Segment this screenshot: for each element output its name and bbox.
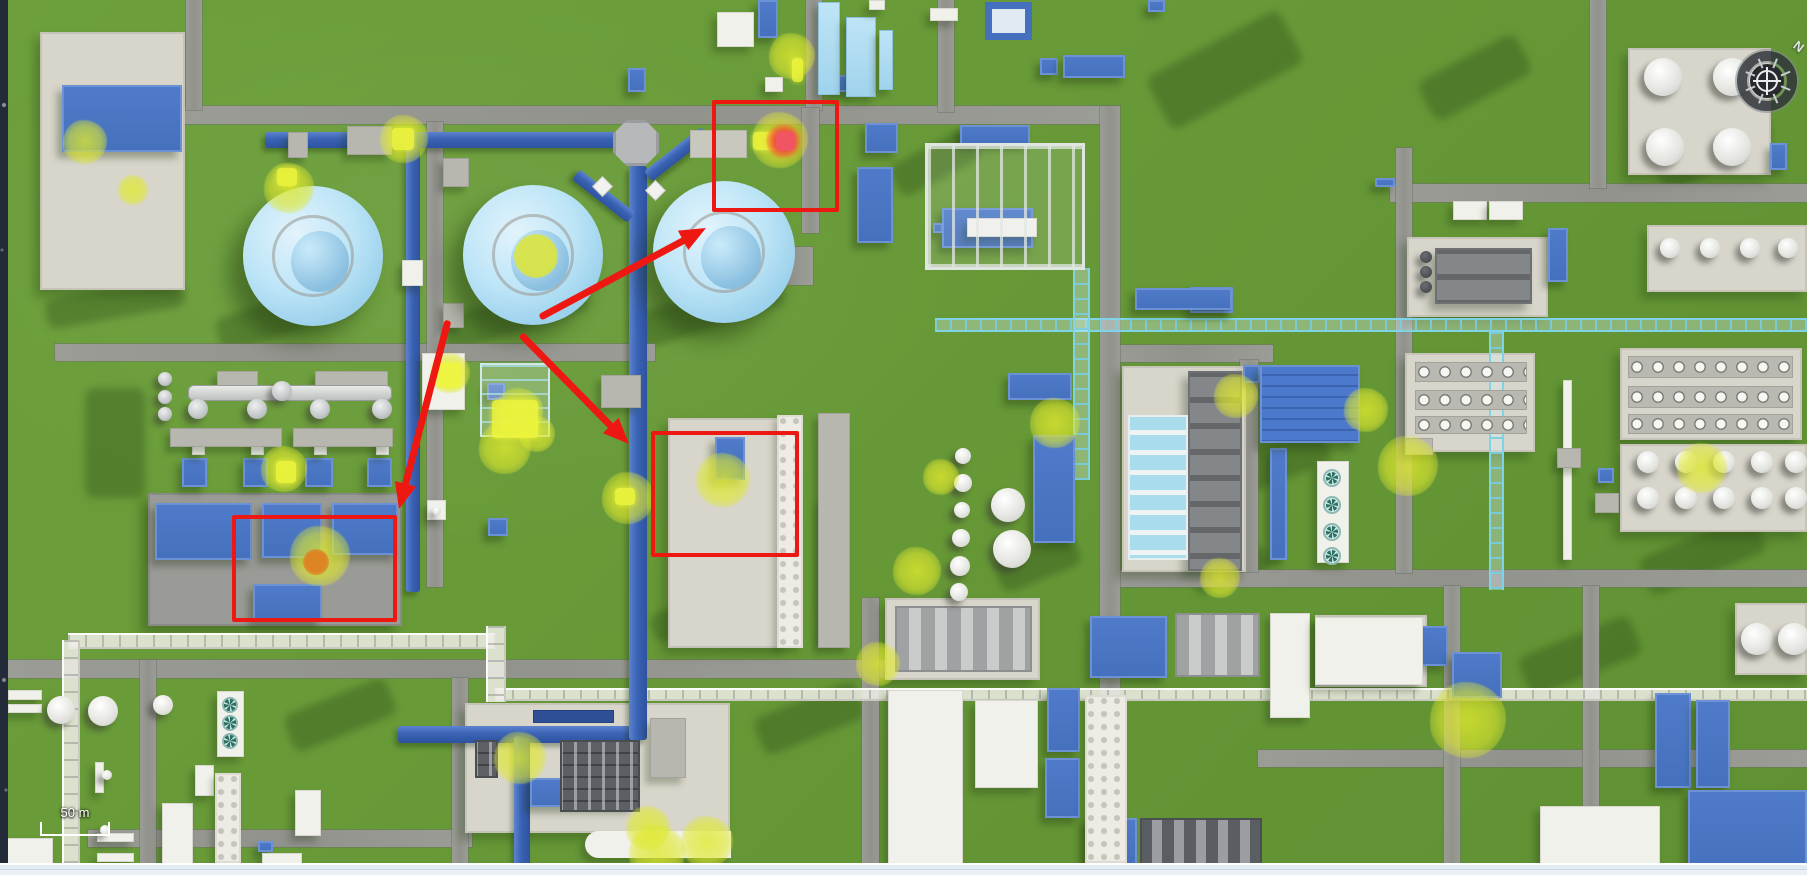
building-bb <box>488 518 508 536</box>
storage-tank <box>1751 451 1773 473</box>
process-pipe <box>406 140 420 592</box>
building-bb <box>1770 143 1787 170</box>
building-bg <box>1557 448 1581 468</box>
storage-tank <box>153 695 173 715</box>
building-bw <box>765 77 783 92</box>
sensor-marker-core <box>277 168 297 186</box>
building-bb <box>1375 178 1395 187</box>
building-exch <box>1628 386 1793 408</box>
bottom-window-edge <box>0 863 1807 875</box>
building-exch <box>1628 414 1793 434</box>
storage-tank <box>102 770 112 780</box>
plant-map-viewport[interactable]: N 50 m <box>0 0 1807 875</box>
building-bg <box>217 371 258 386</box>
compressor-unit <box>158 372 172 386</box>
building-bg <box>293 428 393 447</box>
storage-tank <box>1637 451 1659 473</box>
utility-pipe-bridge <box>1073 268 1090 480</box>
building-bw <box>195 765 214 796</box>
storage-tank <box>47 696 75 724</box>
storage-tank <box>1644 58 1682 96</box>
building-bb <box>758 0 778 38</box>
sensor-heat-marker[interactable] <box>514 234 558 278</box>
storage-tank <box>433 507 441 515</box>
storage-tank <box>1713 128 1751 166</box>
road <box>0 660 912 678</box>
building-bb <box>628 68 646 92</box>
building-exch <box>1415 390 1527 410</box>
compass-crosshair-icon <box>1756 70 1778 92</box>
compressor-unit <box>188 399 208 419</box>
storage-tank <box>952 529 970 547</box>
building-bb <box>1270 448 1287 560</box>
road <box>186 0 202 110</box>
sensor-heat-marker[interactable] <box>626 806 670 850</box>
building-bb <box>182 458 207 487</box>
building-containers <box>895 606 1032 672</box>
building-bb <box>1090 616 1167 678</box>
cooling-fan <box>1323 547 1341 565</box>
storage-tank <box>1785 451 1807 473</box>
process-pipe <box>265 132 635 148</box>
sensor-heat-marker[interactable] <box>1200 558 1240 598</box>
building-lb <box>846 17 876 97</box>
building-lb <box>818 2 840 95</box>
sensor-heat-marker[interactable] <box>1030 398 1080 448</box>
sensor-heat-marker[interactable] <box>118 175 148 205</box>
ground-shadow <box>85 388 145 498</box>
building-bw <box>8 704 42 713</box>
building-bw <box>1315 617 1423 685</box>
compressor-unit <box>310 399 330 419</box>
building-bg <box>443 158 469 187</box>
pipe-rack <box>68 633 495 649</box>
pipe-junction-platform <box>613 120 659 166</box>
building-bg <box>315 371 388 386</box>
storage-tank <box>1785 487 1807 509</box>
building-bb <box>865 123 898 153</box>
compressor-unit <box>158 407 172 421</box>
building-bbd <box>533 710 614 723</box>
building-bw <box>8 690 42 700</box>
building-bw <box>1489 201 1523 220</box>
sensor-marker-core <box>276 461 296 483</box>
sensor-heat-marker[interactable] <box>1344 388 1388 432</box>
cooling-fan <box>222 715 238 731</box>
concrete-pad <box>40 32 185 290</box>
building-machinery <box>560 740 640 812</box>
building-bw <box>1563 380 1572 560</box>
map-canvas[interactable] <box>0 0 1807 875</box>
pipe-rack <box>62 640 80 875</box>
storage-tank <box>1740 238 1760 258</box>
ground-shadow <box>1145 8 1306 131</box>
building-bw <box>1270 613 1310 718</box>
building-exch <box>1628 356 1793 378</box>
road <box>55 344 655 361</box>
compressor-unit <box>372 399 392 419</box>
road <box>1590 0 1606 188</box>
building-bg <box>288 132 308 158</box>
building-bw <box>402 260 423 286</box>
pipe-rack <box>486 626 506 702</box>
sensor-heat-marker[interactable] <box>681 816 733 868</box>
building-bb <box>1135 288 1232 310</box>
building-bb <box>367 458 392 487</box>
storage-tank <box>1637 487 1659 509</box>
storage-tank <box>1660 238 1680 258</box>
compressor-unit <box>272 381 292 401</box>
concrete-pad <box>1647 225 1807 292</box>
building-bb <box>1008 373 1072 400</box>
map-scale-bar: 50 m <box>40 822 110 836</box>
utility-pipe-bridge <box>935 318 1807 332</box>
building-bg-dark <box>1435 248 1532 304</box>
building-bb <box>1047 688 1080 752</box>
building-bb <box>1655 693 1691 788</box>
storage-tank <box>1700 238 1720 258</box>
building-bb <box>258 841 273 852</box>
sensor-marker-core <box>615 488 635 505</box>
building-bw <box>295 790 321 836</box>
building-bw <box>930 8 958 21</box>
building-skylight <box>1128 415 1188 560</box>
building-exch <box>1415 416 1527 434</box>
building-bb <box>1148 0 1165 12</box>
building-bb <box>1040 58 1058 75</box>
cooling-fan <box>1323 523 1341 541</box>
storage-tank <box>993 530 1031 568</box>
building-bw <box>97 853 134 862</box>
building-bb <box>1045 758 1080 818</box>
building-bb <box>1598 468 1614 483</box>
building-bg <box>170 428 282 447</box>
building-exch <box>1415 362 1527 382</box>
storage-sphere <box>243 186 383 326</box>
compass-widget[interactable]: N <box>1737 51 1797 111</box>
sensor-heat-marker[interactable] <box>63 120 107 164</box>
building-bw <box>1453 201 1487 220</box>
storage-tank <box>950 583 968 601</box>
building-bb <box>1033 435 1075 543</box>
storage-tank <box>1778 238 1798 258</box>
building-dotcol <box>215 773 241 863</box>
building-bb <box>960 125 1030 145</box>
sensor-heat-marker[interactable] <box>1430 682 1506 758</box>
building-bb-frame <box>985 2 1032 40</box>
pipe-rack <box>495 688 1807 701</box>
ground-shadow <box>1416 32 1534 123</box>
sensor-heat-marker[interactable] <box>494 732 546 784</box>
storage-tank <box>950 556 970 576</box>
scale-label: 50 m <box>42 805 108 820</box>
storage-tank <box>1741 623 1773 655</box>
storage-tank <box>1646 128 1684 166</box>
cooling-fan <box>1323 469 1341 487</box>
storage-tank <box>991 488 1025 522</box>
storage-tank <box>88 696 118 726</box>
process-pipe <box>629 166 647 740</box>
process-vessel <box>1420 266 1432 278</box>
sensor-heat-marker[interactable] <box>1677 443 1727 493</box>
building-bw <box>717 12 754 47</box>
sensor-heat-marker[interactable] <box>1378 436 1438 496</box>
building-dotcol <box>1085 695 1127 863</box>
storage-tank <box>1713 487 1735 509</box>
storage-tank <box>954 502 970 518</box>
building-lb <box>879 30 893 90</box>
building-bg <box>818 413 850 648</box>
sensor-marker-core <box>437 363 462 388</box>
cooling-fan <box>1323 496 1341 514</box>
sensor-heat-marker[interactable] <box>893 547 941 595</box>
storage-tank <box>955 448 971 464</box>
road <box>862 598 879 875</box>
annotation-rectangle <box>232 515 397 622</box>
left-window-edge <box>0 0 8 875</box>
storage-tank <box>1778 623 1807 655</box>
sensor-marker-core <box>492 400 538 438</box>
building-frame-steel <box>925 143 1085 270</box>
annotation-rectangle <box>651 431 799 557</box>
sensor-marker-core <box>792 58 803 82</box>
cooling-fan <box>222 697 238 713</box>
building-bb <box>1548 228 1568 282</box>
building-bb <box>305 458 333 487</box>
building-bb <box>857 167 893 243</box>
building-containers <box>1175 613 1260 677</box>
building-bb <box>1063 55 1125 78</box>
building-bg <box>1595 493 1619 513</box>
ground-shadow <box>282 676 399 754</box>
sensor-heat-marker[interactable] <box>923 459 959 495</box>
process-vessel <box>1420 251 1432 263</box>
building-bw <box>869 0 885 10</box>
building-bw <box>975 700 1038 788</box>
building-bb <box>1696 700 1730 788</box>
pipe-joint <box>646 181 664 199</box>
building-bw <box>888 690 963 875</box>
sensor-marker-core <box>392 128 414 150</box>
storage-tank <box>1751 487 1773 509</box>
road <box>140 660 156 875</box>
building-bg <box>601 375 641 408</box>
sensor-heat-marker[interactable] <box>856 642 900 686</box>
process-vessel <box>1420 281 1432 293</box>
compressor-unit <box>247 399 267 419</box>
ground-shadow <box>1517 614 1644 698</box>
annotation-rectangle <box>712 100 839 212</box>
sensor-heat-marker[interactable] <box>1214 374 1258 418</box>
building-bg <box>650 718 686 778</box>
compressor-unit <box>158 390 172 404</box>
cooling-fan <box>222 733 238 749</box>
